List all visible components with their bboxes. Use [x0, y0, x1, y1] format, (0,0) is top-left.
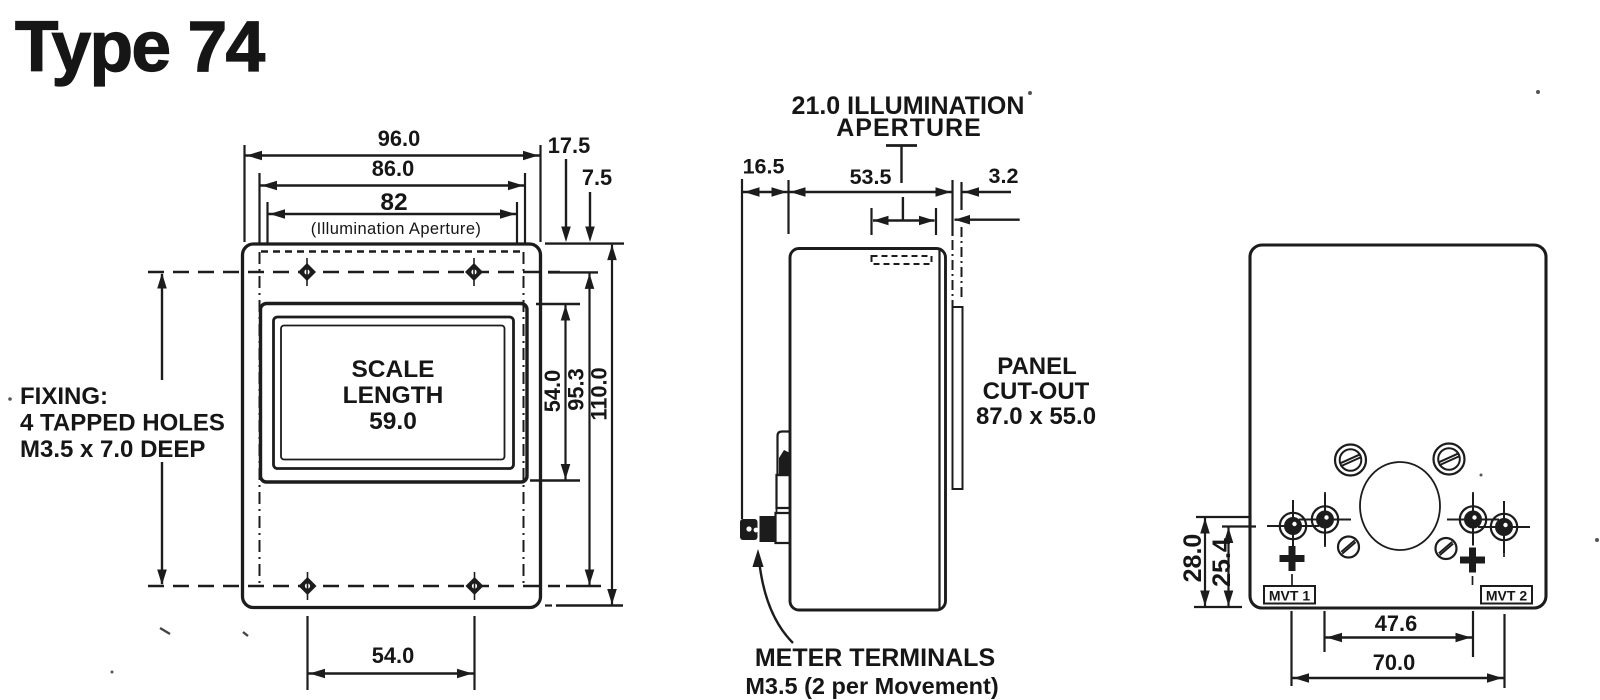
svg-text:3.2: 3.2 — [989, 164, 1019, 188]
svg-text:APERTURE: APERTURE — [836, 114, 982, 142]
svg-text:4 TAPPED HOLES: 4 TAPPED HOLES — [20, 410, 225, 437]
svg-text:METER TERMINALS: METER TERMINALS — [755, 644, 995, 672]
svg-text:16.5: 16.5 — [743, 155, 785, 179]
svg-text:53.5: 53.5 — [850, 165, 892, 189]
svg-text:28.0: 28.0 — [1179, 534, 1207, 583]
svg-text:86.0: 86.0 — [372, 156, 414, 181]
svg-text:Type 74: Type 74 — [15, 8, 266, 87]
svg-text:PANEL: PANEL — [997, 353, 1077, 380]
svg-text:17.5: 17.5 — [548, 133, 590, 158]
svg-text:SCALE: SCALE — [351, 356, 434, 383]
svg-text:59.0: 59.0 — [369, 408, 417, 435]
svg-text:FIXING:: FIXING: — [20, 383, 108, 410]
svg-text:95.3: 95.3 — [564, 368, 589, 410]
svg-text:87.0 x 55.0: 87.0 x 55.0 — [976, 403, 1096, 430]
svg-text:MVT 2: MVT 2 — [1486, 588, 1527, 604]
svg-text:110.0: 110.0 — [587, 367, 612, 420]
svg-text:7.5: 7.5 — [582, 165, 612, 190]
svg-text:CUT-OUT: CUT-OUT — [983, 378, 1090, 405]
svg-text:LENGTH: LENGTH — [343, 382, 444, 409]
svg-text:96.0: 96.0 — [378, 126, 420, 151]
svg-text:70.0: 70.0 — [1373, 650, 1415, 675]
svg-text:M3.5 (2 per Movement): M3.5 (2 per Movement) — [745, 673, 998, 699]
svg-text:M3.5 x 7.0 DEEP: M3.5 x 7.0 DEEP — [20, 436, 205, 463]
svg-text:25.4: 25.4 — [1208, 538, 1236, 587]
svg-text:47.6: 47.6 — [1375, 611, 1417, 636]
svg-text:(Illumination Aperture): (Illumination Aperture) — [311, 220, 482, 238]
svg-text:54.0: 54.0 — [540, 370, 565, 412]
svg-text:MVT 1: MVT 1 — [1269, 588, 1310, 604]
svg-text:54.0: 54.0 — [372, 643, 414, 668]
svg-text:82: 82 — [380, 189, 407, 216]
